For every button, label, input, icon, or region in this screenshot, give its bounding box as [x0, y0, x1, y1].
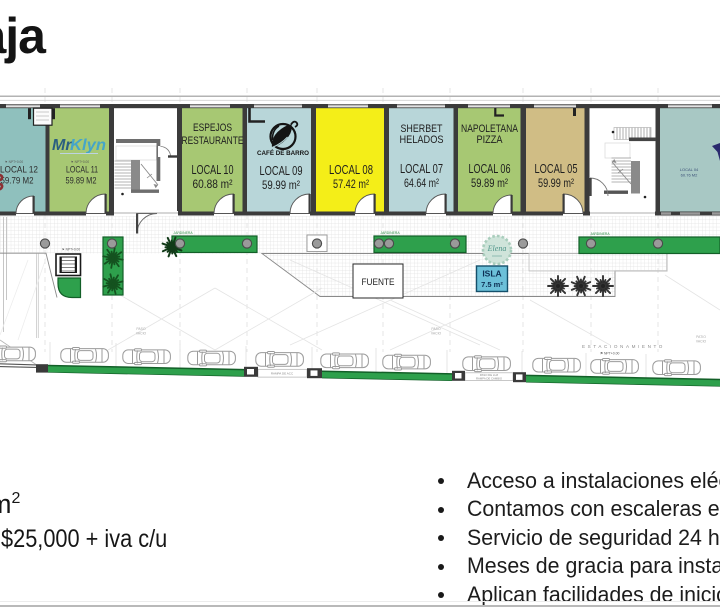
- svg-text:59.79 M2: 59.79 M2: [1, 176, 34, 186]
- svg-text:LOCAL 11: LOCAL 11: [66, 165, 98, 176]
- svg-text:59.99 m²: 59.99 m²: [538, 176, 574, 190]
- svg-text:LOCAL 07: LOCAL 07: [400, 162, 443, 176]
- svg-text:LOCAL 04: LOCAL 04: [680, 167, 699, 172]
- svg-text:JARDINERA: JARDINERA: [173, 231, 193, 235]
- svg-text:59.89 M2: 59.89 M2: [66, 176, 97, 186]
- svg-text:ESTACIONAMIENTO: ESTACIONAMIENTO: [582, 344, 665, 349]
- svg-text:JARDINERA: JARDINERA: [380, 231, 400, 235]
- svg-text:LOCAL 10: LOCAL 10: [192, 163, 234, 177]
- svg-text:ESPEJOS: ESPEJOS: [193, 122, 232, 134]
- svg-text:PIZZA: PIZZA: [477, 134, 504, 146]
- svg-text:PASO: PASO: [136, 327, 146, 331]
- svg-text:LOCAL 09: LOCAL 09: [260, 164, 303, 178]
- svg-text:⚑ NPT+0.00: ⚑ NPT+0.00: [62, 248, 80, 252]
- svg-text:64.64 m²: 64.64 m²: [404, 176, 439, 190]
- svg-text:PASO: PASO: [431, 327, 441, 331]
- svg-text:⚑ NPT+0.00: ⚑ NPT+0.00: [5, 160, 23, 164]
- svg-text:VACIO: VACIO: [696, 340, 707, 344]
- svg-text:VACIO: VACIO: [136, 332, 147, 336]
- svg-text:⚑ NPT+0.00: ⚑ NPT+0.00: [600, 352, 619, 356]
- svg-text:RAMPA DE CAMBIO: RAMPA DE CAMBIO: [476, 377, 503, 381]
- svg-text:60.88 m²: 60.88 m²: [193, 177, 233, 191]
- svg-text:57.42 m²: 57.42 m²: [333, 177, 369, 191]
- svg-text:PATIO: PATIO: [696, 335, 706, 339]
- svg-text:RESTAURANTE: RESTAURANTE: [182, 135, 244, 147]
- svg-text:ISLA: ISLA: [482, 269, 501, 279]
- svg-text:LOCAL 12: LOCAL 12: [0, 165, 38, 176]
- svg-text:HELADOS: HELADOS: [400, 134, 444, 146]
- svg-text:FUENTE: FUENTE: [362, 277, 395, 288]
- svg-text:59.99 m²: 59.99 m²: [262, 178, 300, 192]
- svg-text:⚑ NPT+0.00: ⚑ NPT+0.00: [71, 160, 89, 164]
- svg-text:LOCAL 06: LOCAL 06: [469, 162, 511, 176]
- svg-text:Klyn: Klyn: [70, 137, 106, 154]
- svg-text:7.5 m²: 7.5 m²: [481, 280, 503, 289]
- svg-text:Elena: Elena: [487, 244, 507, 253]
- svg-text:CAFÉ DE BARRO: CAFÉ DE BARRO: [257, 148, 309, 157]
- svg-text:RAMPA DE ACC: RAMPA DE ACC: [271, 372, 294, 376]
- svg-text:VACIO: VACIO: [431, 332, 442, 336]
- svg-text:LOCAL 08: LOCAL 08: [329, 163, 373, 177]
- svg-text:LOCAL 05: LOCAL 05: [535, 162, 578, 176]
- svg-text:60.76 M2: 60.76 M2: [681, 173, 698, 178]
- svg-text:59.89 m²: 59.89 m²: [471, 176, 508, 190]
- svg-text:JARDINERA: JARDINERA: [590, 232, 610, 236]
